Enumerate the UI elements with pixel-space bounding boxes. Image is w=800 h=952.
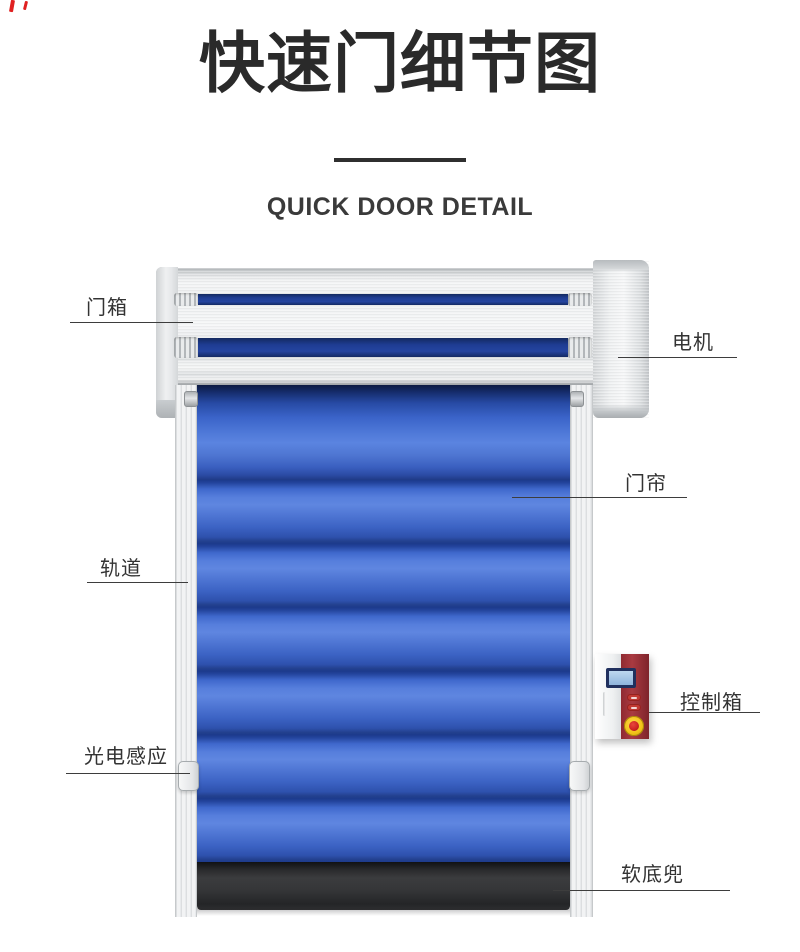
label-soft-bottom: 软底兜 [621, 858, 684, 887]
motor-housing-bevel [593, 404, 649, 418]
label-control-box: 控制箱 [680, 686, 743, 715]
control-screen-display [609, 671, 633, 685]
control-box [595, 654, 649, 739]
soft-bottom-pocket [197, 862, 570, 910]
door-curtain [197, 480, 570, 862]
door-box-housing [178, 268, 593, 385]
photoelectric-sensor-left [178, 761, 199, 791]
guide-track-left [175, 385, 197, 917]
control-screen [606, 668, 636, 688]
motor-housing-bevel [593, 260, 649, 272]
roll-axle-pin [570, 391, 584, 407]
header-slot-bar [198, 338, 568, 357]
leader-line-track [87, 582, 188, 583]
page-subtitle: QUICK DOOR DETAIL [0, 193, 800, 222]
photoelectric-sensor-right [569, 761, 590, 791]
slot-ribbed-end [568, 337, 592, 358]
leader-line-curtain [512, 497, 687, 498]
control-button [627, 704, 641, 711]
guide-track-right [570, 385, 593, 917]
label-motor: 电机 [672, 326, 714, 355]
motor-housing [593, 260, 649, 418]
roll-axle-pin [184, 391, 198, 407]
slot-ribbed-end [174, 337, 198, 358]
quick-door-detail-diagram: 快速门细节图 QUICK DOOR DETAIL [0, 0, 800, 952]
page-title: 快速门细节图 [0, 28, 800, 98]
corner-red-mark [23, 1, 28, 10]
pocket-shadow [197, 908, 570, 916]
slot-ribbed-end [174, 293, 198, 306]
leader-line-photo-sensor [66, 773, 190, 774]
control-button [627, 694, 641, 701]
header-slot-bar [198, 294, 568, 305]
title-divider [334, 158, 466, 162]
leader-line-door-box [70, 322, 193, 323]
label-door-box: 门箱 [86, 291, 128, 320]
label-photo-sensor: 光电感应 [84, 740, 168, 769]
leader-line-motor [618, 357, 737, 358]
leader-line-soft-bottom [553, 890, 730, 891]
label-track: 轨道 [100, 552, 142, 581]
brushed-metal-texture [178, 268, 593, 385]
slot-ribbed-end [568, 293, 592, 306]
emergency-stop-button [624, 716, 644, 736]
emergency-stop-core [629, 721, 639, 731]
label-curtain: 门帘 [625, 467, 667, 496]
brushed-metal-texture [593, 260, 649, 418]
control-box-white-panel [595, 654, 621, 739]
curtain-top-roll [197, 385, 570, 480]
control-box-vent-slot [603, 692, 606, 716]
corner-red-mark [9, 0, 15, 12]
